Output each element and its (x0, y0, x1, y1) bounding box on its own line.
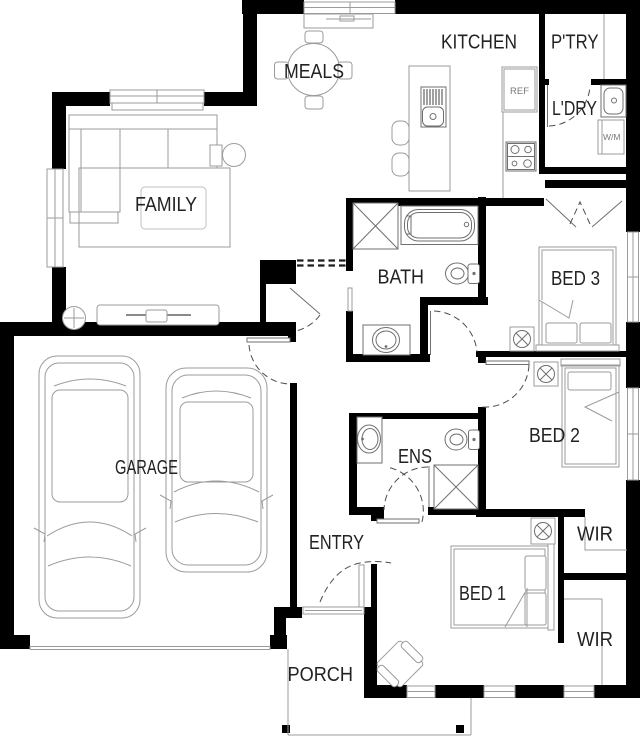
svg-text:MEALS: MEALS (284, 61, 344, 83)
svg-text:WIR: WIR (577, 629, 613, 651)
svg-text:PORCH: PORCH (288, 664, 354, 686)
svg-text:BED 2: BED 2 (529, 425, 580, 447)
svg-text:BATH: BATH (378, 267, 425, 289)
svg-text:FAMILY: FAMILY (135, 194, 197, 216)
svg-text:ENTRY: ENTRY (309, 532, 364, 554)
svg-text:KITCHEN: KITCHEN (441, 32, 517, 54)
svg-text:W/M: W/M (603, 132, 620, 142)
svg-text:ENS: ENS (398, 446, 432, 468)
svg-text:P'TRY: P'TRY (551, 32, 599, 54)
svg-text:BED 1: BED 1 (459, 583, 506, 605)
svg-text:REF: REF (510, 86, 529, 97)
svg-text:WIR: WIR (577, 524, 613, 546)
svg-text:BED 3: BED 3 (551, 268, 600, 290)
svg-text:L'DRY: L'DRY (552, 98, 597, 120)
svg-text:GARAGE: GARAGE (115, 457, 178, 479)
